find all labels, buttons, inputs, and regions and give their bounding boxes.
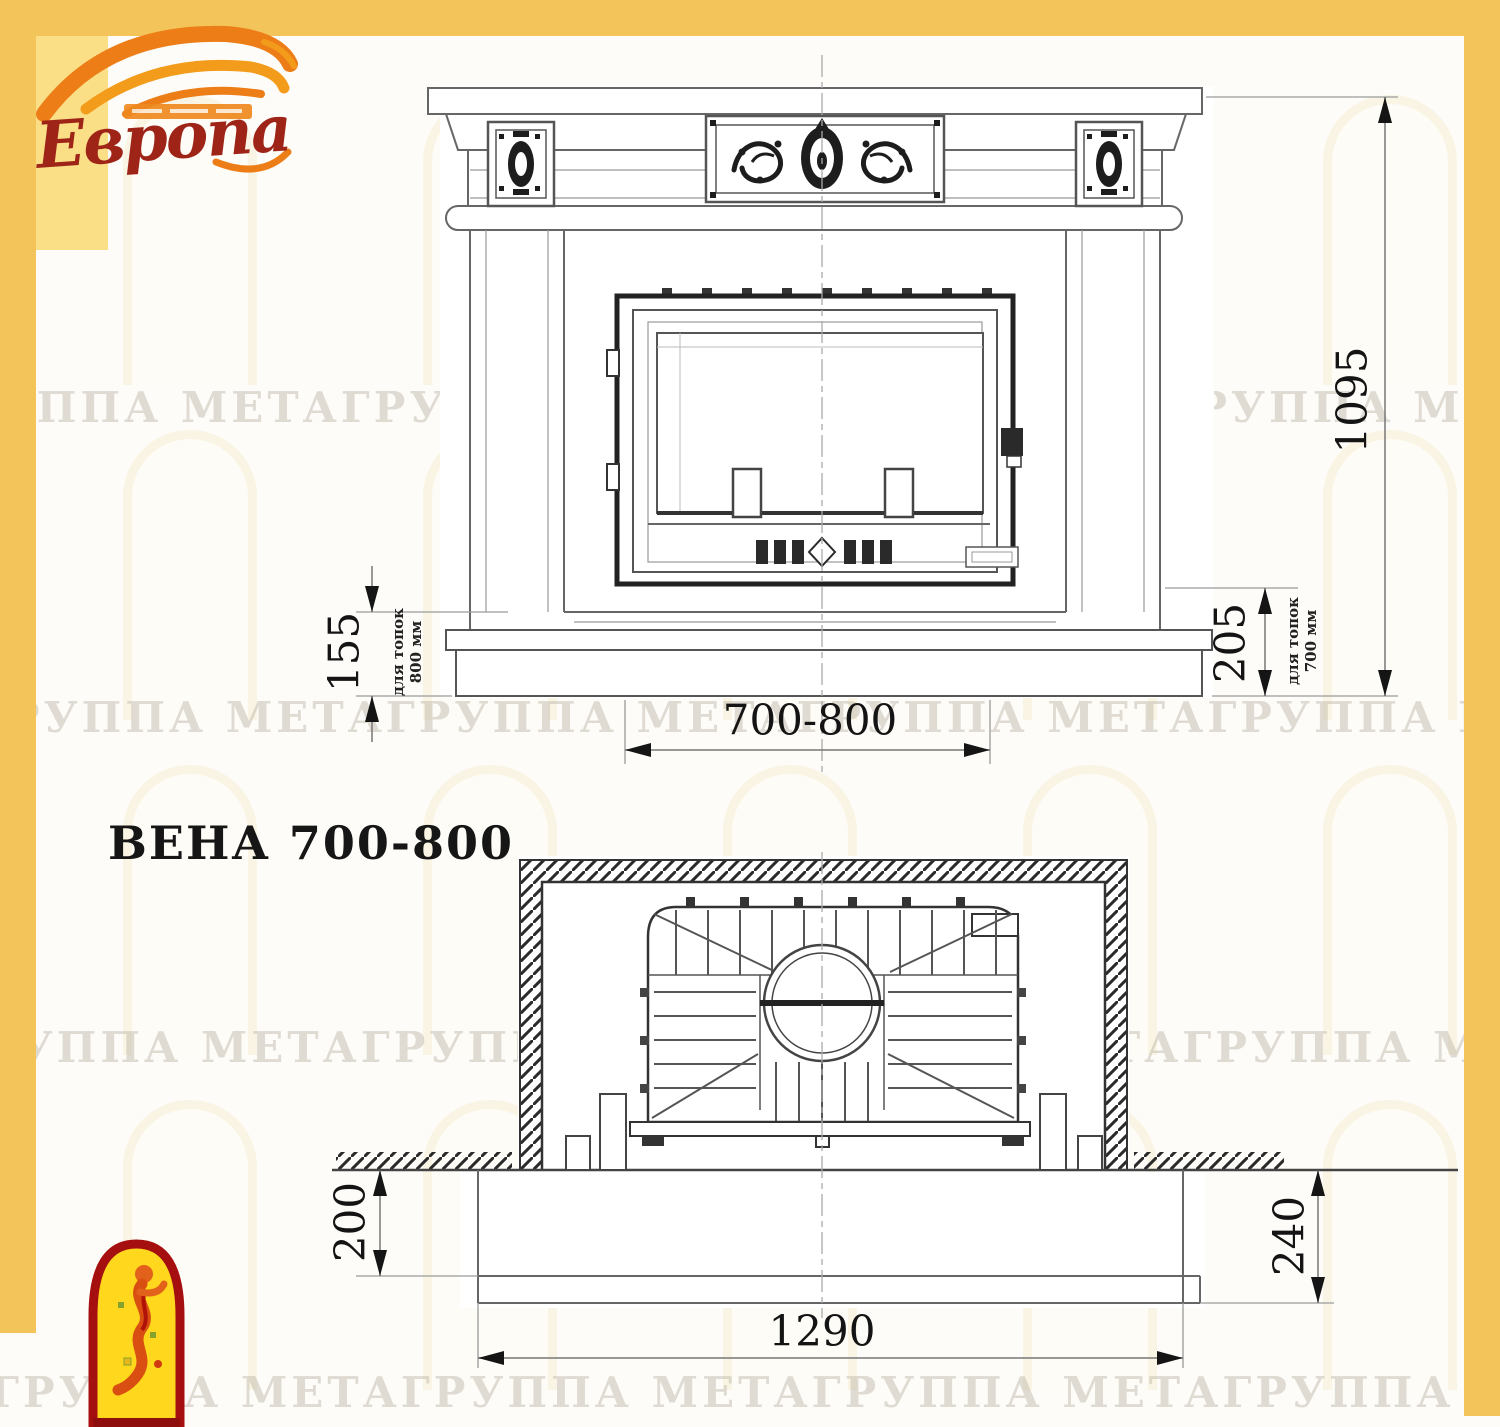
brand-logo: Европа <box>26 12 316 197</box>
firebird-icon <box>84 1232 189 1427</box>
page-border-right <box>1464 36 1500 1416</box>
dim-pedestal-155: 155 <box>320 612 369 692</box>
front-view-drawing <box>428 86 1214 698</box>
dim-hearth-width-1290: 1290 <box>769 1307 876 1356</box>
dim-opening-width: 700-800 <box>723 696 898 745</box>
note-firebox-800: для топок 800 мм <box>389 608 425 696</box>
page-title: ВЕНА 700-800 <box>108 816 514 870</box>
dim-pedestal-205: 205 <box>1206 603 1255 683</box>
bottom-left-emblem <box>84 1232 189 1427</box>
dim-height-1095: 1095 <box>1328 347 1377 454</box>
note-line: 800 мм <box>407 621 425 684</box>
note-line: для топок <box>389 608 407 696</box>
page: ГРУППА МЕТАГРУППА МЕТАГРУППА МЕТАГРУППА … <box>0 0 1500 1427</box>
dim-depth-200: 200 <box>326 1182 375 1262</box>
page-border-left <box>0 36 36 1333</box>
note-firebox-700: для топок 700 мм <box>1284 597 1320 685</box>
note-line: для топок <box>1284 597 1302 685</box>
note-line: 700 мм <box>1302 610 1320 673</box>
dim-depth-240: 240 <box>1265 1196 1314 1276</box>
